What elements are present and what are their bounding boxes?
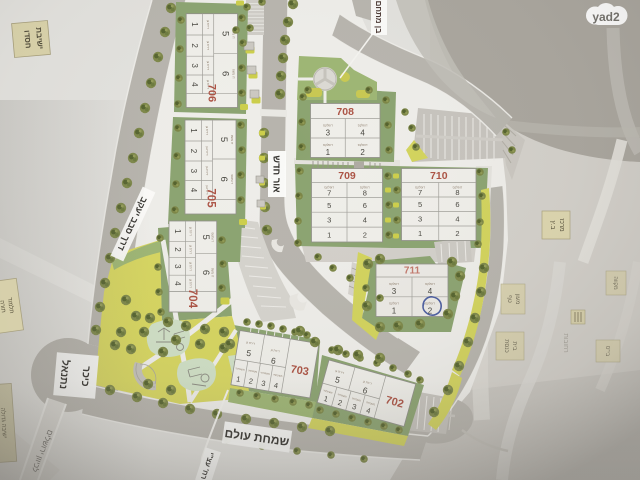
svg-text:תורה: תורה [0,300,6,313]
